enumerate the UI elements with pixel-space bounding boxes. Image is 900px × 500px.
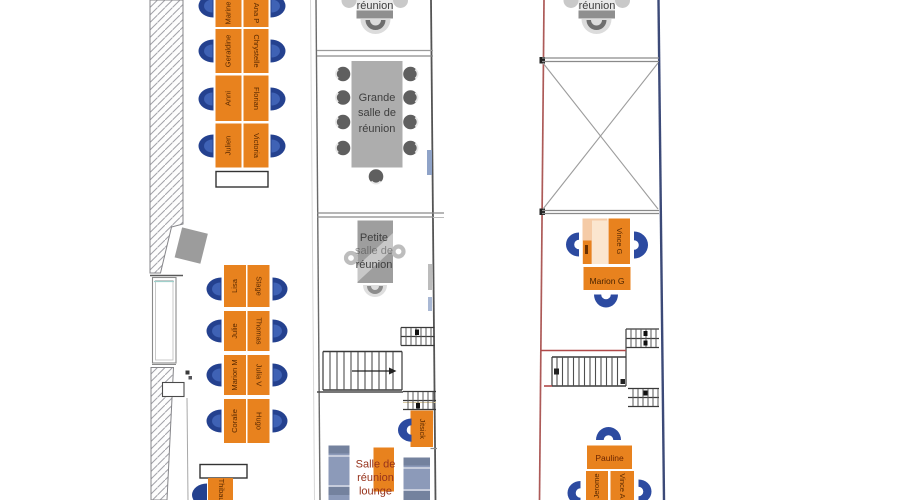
svg-text:salle de: salle de (358, 107, 396, 119)
svg-text:Pauline: Pauline (595, 453, 624, 463)
svg-text:réunion: réunion (357, 0, 394, 12)
svg-text:Marion M: Marion M (230, 359, 239, 390)
svg-text:Julie: Julie (230, 323, 239, 338)
svg-text:Salle de: Salle de (356, 459, 396, 471)
svg-text:Vince G: Vince G (615, 228, 624, 255)
svg-text:Marine: Marine (223, 2, 232, 25)
svg-text:Lisa: Lisa (230, 278, 239, 293)
svg-text:Anni: Anni (223, 91, 232, 106)
svg-text:Coralie: Coralie (230, 409, 239, 433)
svg-text:Hugo: Hugo (255, 412, 264, 430)
svg-text:Geraldine: Geraldine (223, 35, 232, 68)
svg-text:Julien: Julien (223, 136, 232, 156)
svg-text:réunion: réunion (357, 472, 394, 484)
svg-text:Jerome: Jerome (592, 473, 601, 498)
svg-text:Marion G: Marion G (590, 276, 625, 286)
svg-text:Florian: Florian (252, 87, 261, 110)
svg-text:réunion: réunion (356, 259, 393, 271)
svg-text:Victoria: Victoria (252, 133, 261, 159)
svg-text:Thibault: Thibault (217, 479, 226, 500)
svg-text:Grande: Grande (359, 92, 396, 104)
svg-text:Stage: Stage (255, 276, 264, 296)
svg-text:salle de: salle de (355, 245, 393, 257)
svg-text:lounge: lounge (359, 486, 392, 498)
svg-text:Thomas: Thomas (255, 317, 264, 344)
svg-text:Jitsick: Jitsick (418, 419, 427, 440)
svg-text:réunion: réunion (359, 123, 396, 135)
svg-text:réunion: réunion (579, 0, 616, 12)
svg-text:Ana P: Ana P (252, 3, 261, 23)
svg-text:Julia V: Julia V (255, 364, 264, 387)
svg-text:Chrystelle: Chrystelle (252, 34, 261, 67)
svg-text:Petite: Petite (360, 232, 388, 244)
svg-text:Vince A: Vince A (618, 473, 627, 498)
